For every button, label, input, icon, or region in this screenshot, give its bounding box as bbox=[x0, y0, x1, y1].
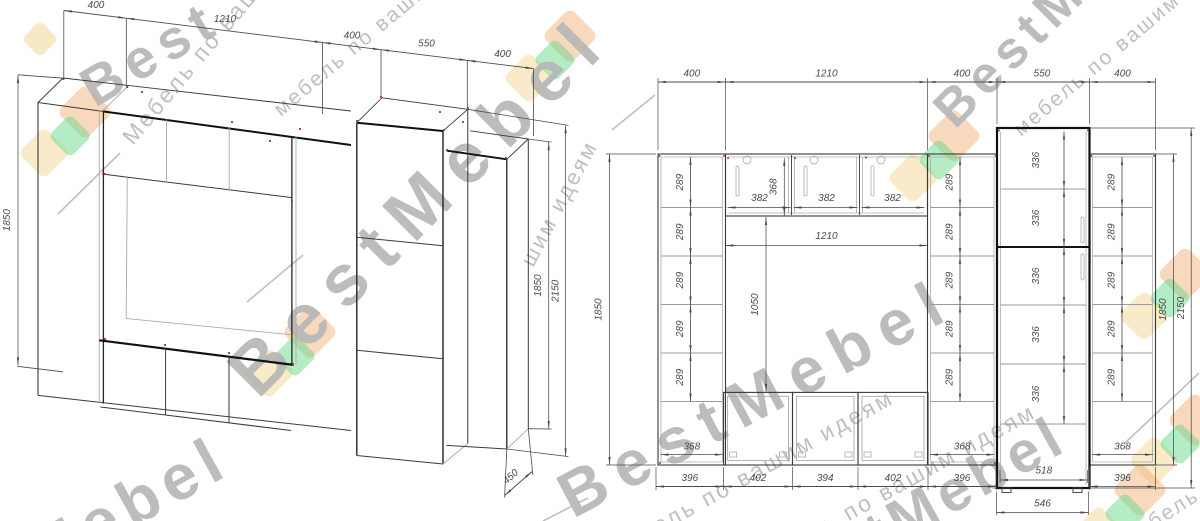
svg-text:289: 289 bbox=[945, 368, 956, 386]
svg-text:394: 394 bbox=[817, 473, 834, 484]
svg-text:1210: 1210 bbox=[815, 69, 838, 80]
svg-text:400: 400 bbox=[683, 69, 700, 80]
svg-text:368: 368 bbox=[1114, 442, 1131, 453]
svg-text:400: 400 bbox=[954, 69, 971, 80]
svg-text:550: 550 bbox=[418, 39, 435, 50]
svg-text:402: 402 bbox=[885, 473, 902, 484]
svg-text:289: 289 bbox=[675, 320, 686, 338]
svg-text:368: 368 bbox=[769, 178, 780, 195]
svg-text:336: 336 bbox=[1031, 151, 1042, 168]
svg-text:400: 400 bbox=[494, 49, 511, 60]
svg-text:289: 289 bbox=[1107, 173, 1118, 191]
svg-text:336: 336 bbox=[1031, 385, 1042, 402]
svg-text:546: 546 bbox=[1034, 499, 1051, 510]
svg-text:550: 550 bbox=[1034, 69, 1051, 80]
svg-text:289: 289 bbox=[1107, 320, 1118, 338]
svg-text:336: 336 bbox=[1031, 267, 1042, 284]
svg-text:368: 368 bbox=[683, 442, 700, 453]
svg-text:400: 400 bbox=[1114, 69, 1131, 80]
svg-text:289: 289 bbox=[675, 271, 686, 289]
svg-text:289: 289 bbox=[1107, 368, 1118, 386]
svg-text:1850: 1850 bbox=[2, 209, 13, 232]
svg-text:1850: 1850 bbox=[533, 274, 544, 297]
svg-text:396: 396 bbox=[954, 473, 971, 484]
svg-text:1850: 1850 bbox=[1158, 298, 1169, 321]
svg-text:289: 289 bbox=[1107, 271, 1118, 289]
svg-text:289: 289 bbox=[945, 223, 956, 241]
svg-text:336: 336 bbox=[1031, 209, 1042, 226]
svg-text:396: 396 bbox=[681, 473, 698, 484]
svg-text:2150: 2150 bbox=[551, 279, 562, 303]
svg-text:1850: 1850 bbox=[594, 298, 605, 321]
svg-text:289: 289 bbox=[675, 173, 686, 191]
svg-text:396: 396 bbox=[1114, 473, 1131, 484]
svg-text:289: 289 bbox=[675, 223, 686, 241]
svg-text:289: 289 bbox=[945, 320, 956, 338]
svg-text:336: 336 bbox=[1031, 326, 1042, 343]
svg-text:289: 289 bbox=[675, 368, 686, 386]
svg-text:368: 368 bbox=[954, 442, 971, 453]
svg-text:400: 400 bbox=[344, 31, 361, 42]
svg-text:1050: 1050 bbox=[750, 293, 761, 316]
svg-text:400: 400 bbox=[88, 0, 105, 11]
svg-text:289: 289 bbox=[945, 173, 956, 191]
svg-text:382: 382 bbox=[818, 193, 835, 204]
svg-text:1210: 1210 bbox=[214, 14, 237, 25]
svg-text:382: 382 bbox=[751, 193, 768, 204]
svg-text:289: 289 bbox=[945, 271, 956, 289]
svg-text:518: 518 bbox=[1035, 466, 1052, 477]
svg-text:382: 382 bbox=[884, 193, 901, 204]
svg-text:1210: 1210 bbox=[815, 231, 838, 242]
svg-text:289: 289 bbox=[1107, 223, 1118, 241]
svg-text:2150: 2150 bbox=[1176, 296, 1187, 320]
svg-text:402: 402 bbox=[750, 473, 767, 484]
